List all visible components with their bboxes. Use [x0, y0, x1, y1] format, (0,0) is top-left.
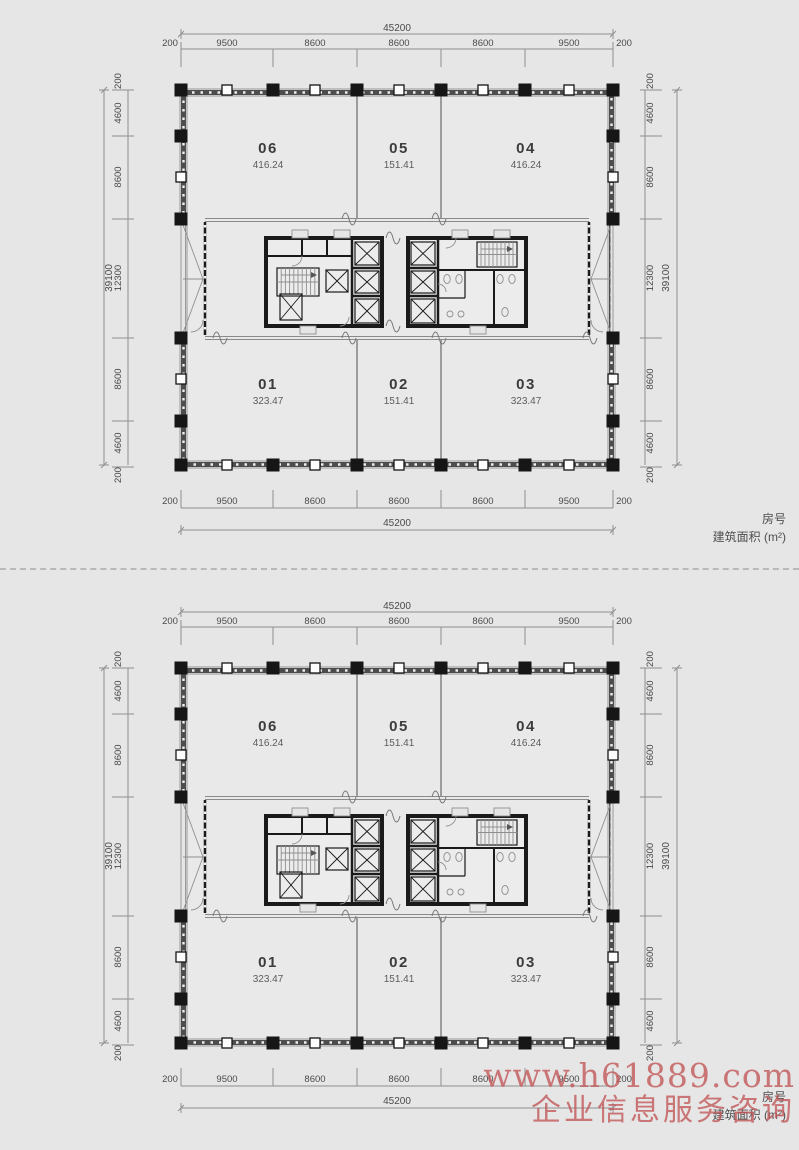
- dim-left-6: 200: [113, 1045, 124, 1061]
- floor-plan-upper-drawing: 4520020095008600860086009500200200950086…: [0, 22, 799, 567]
- dim-top-0: 200: [162, 616, 178, 627]
- dim-right-0: 200: [645, 73, 656, 89]
- legend-floor-area: 建筑面积 (m²): [713, 1107, 786, 1122]
- legend: 房号建筑面积 (m²): [713, 511, 786, 544]
- room-area-03: 323.47: [511, 974, 542, 985]
- dim-left-3: 12300: [113, 265, 124, 291]
- dim-right-5: 4600: [645, 432, 656, 453]
- dim-left-0: 200: [113, 73, 124, 89]
- room-area-02: 151.41: [384, 396, 415, 407]
- room-area-05: 151.41: [384, 738, 415, 749]
- legend: 房号建筑面积 (m²): [713, 1089, 786, 1122]
- dim-left-0: 200: [113, 651, 124, 667]
- dim-left-5: 4600: [113, 432, 124, 453]
- dim-right-2: 8600: [645, 166, 656, 187]
- room-area-04: 416.24: [511, 738, 542, 749]
- floor-plan-upper: 4520020095008600860086009500200200950086…: [0, 22, 799, 567]
- dim-top-3: 8600: [388, 616, 409, 627]
- room-number-04: 04: [516, 140, 536, 157]
- room-area-06: 416.24: [253, 160, 284, 171]
- floor-plan-lower: 4520020095008600860086009500200200950086…: [0, 600, 799, 1145]
- dim-top-2: 8600: [304, 38, 325, 49]
- legend-room-number: 房号: [762, 1089, 786, 1104]
- dim-bottom-6: 200: [616, 496, 632, 507]
- dim-bottom-4: 8600: [472, 1074, 493, 1085]
- dim-left-5: 4600: [113, 1010, 124, 1031]
- dim-bottom-3: 8600: [388, 496, 409, 507]
- room-area-03: 323.47: [511, 396, 542, 407]
- dim-top-2: 8600: [304, 616, 325, 627]
- dim-bottom-1: 9500: [216, 1074, 237, 1085]
- room-area-01: 323.47: [253, 974, 284, 985]
- dim-left-1: 4600: [113, 680, 124, 701]
- dim-top-4: 8600: [472, 616, 493, 627]
- dim-top-3: 8600: [388, 38, 409, 49]
- room-number-04: 04: [516, 718, 536, 735]
- dim-top-5: 9500: [558, 38, 579, 49]
- dim-bottom-2: 8600: [304, 1074, 325, 1085]
- floor-plan-lower-drawing: 4520020095008600860086009500200200950086…: [0, 600, 799, 1145]
- room-number-03: 03: [516, 376, 536, 393]
- dim-bottom-5: 9500: [558, 1074, 579, 1085]
- dim-right-6: 200: [645, 1045, 656, 1061]
- room-number-06: 06: [258, 140, 278, 157]
- dim-bottom-3: 8600: [388, 1074, 409, 1085]
- legend-floor-area: 建筑面积 (m²): [713, 529, 786, 544]
- dim-right-3: 12300: [645, 843, 656, 869]
- room-area-04: 416.24: [511, 160, 542, 171]
- room-number-02: 02: [389, 376, 409, 393]
- room-number-06: 06: [258, 718, 278, 735]
- room-number-01: 01: [258, 376, 278, 393]
- dim-left-3: 12300: [113, 843, 124, 869]
- dim-left-6: 200: [113, 467, 124, 483]
- dim-top-total: 45200: [383, 601, 411, 612]
- dim-right-1: 4600: [645, 102, 656, 123]
- page: 4520020095008600860086009500200200950086…: [0, 0, 799, 1150]
- plans-divider: [0, 568, 799, 570]
- dim-bottom-6: 200: [616, 1074, 632, 1085]
- dim-top-1: 9500: [216, 38, 237, 49]
- dim-top-0: 200: [162, 38, 178, 49]
- dim-top-total: 45200: [383, 23, 411, 34]
- dim-top-4: 8600: [472, 38, 493, 49]
- room-area-02: 151.41: [384, 974, 415, 985]
- dim-right-total: 39100: [661, 264, 672, 292]
- dim-top-1: 9500: [216, 616, 237, 627]
- dim-bottom-total: 45200: [383, 518, 411, 529]
- dim-left-2: 8600: [113, 744, 124, 765]
- dim-left-4: 8600: [113, 368, 124, 389]
- dim-bottom-0: 200: [162, 496, 178, 507]
- room-area-06: 416.24: [253, 738, 284, 749]
- dim-top-6: 200: [616, 616, 632, 627]
- room-number-05: 05: [389, 718, 409, 735]
- room-area-01: 323.47: [253, 396, 284, 407]
- dim-left-2: 8600: [113, 166, 124, 187]
- dim-left-1: 4600: [113, 102, 124, 123]
- dim-right-4: 8600: [645, 946, 656, 967]
- room-area-05: 151.41: [384, 160, 415, 171]
- room-number-01: 01: [258, 954, 278, 971]
- dim-top-5: 9500: [558, 616, 579, 627]
- dim-left-4: 8600: [113, 946, 124, 967]
- dim-bottom-5: 9500: [558, 496, 579, 507]
- dim-right-0: 200: [645, 651, 656, 667]
- dim-right-1: 4600: [645, 680, 656, 701]
- dim-right-5: 4600: [645, 1010, 656, 1031]
- room-number-02: 02: [389, 954, 409, 971]
- dim-bottom-total: 45200: [383, 1096, 411, 1107]
- dim-right-6: 200: [645, 467, 656, 483]
- room-number-05: 05: [389, 140, 409, 157]
- dim-top-6: 200: [616, 38, 632, 49]
- dim-bottom-2: 8600: [304, 496, 325, 507]
- dim-right-4: 8600: [645, 368, 656, 389]
- legend-room-number: 房号: [762, 511, 786, 526]
- dim-bottom-1: 9500: [216, 496, 237, 507]
- dim-right-3: 12300: [645, 265, 656, 291]
- room-number-03: 03: [516, 954, 536, 971]
- dim-bottom-4: 8600: [472, 496, 493, 507]
- dim-bottom-0: 200: [162, 1074, 178, 1085]
- dim-right-total: 39100: [661, 842, 672, 870]
- dim-right-2: 8600: [645, 744, 656, 765]
